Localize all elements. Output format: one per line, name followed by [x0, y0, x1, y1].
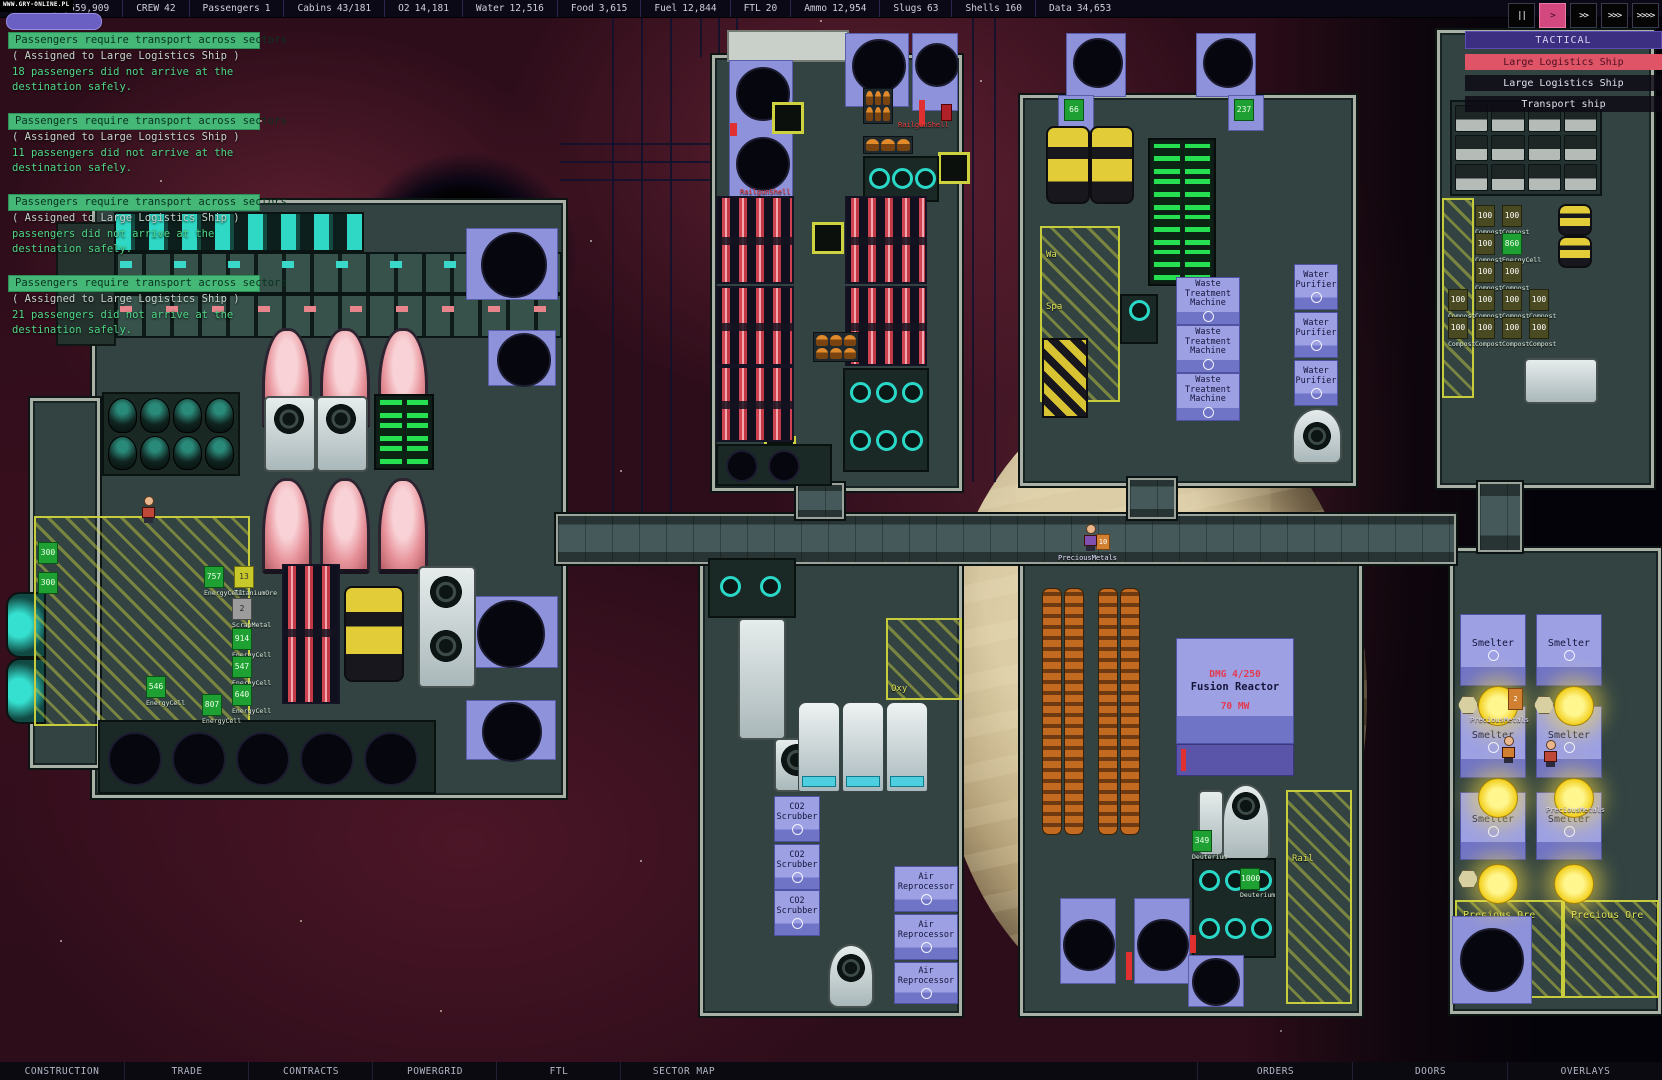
item-stack[interactable]: 300	[38, 572, 58, 594]
striped-machine[interactable]	[1042, 338, 1088, 418]
notification-body: destination safely.	[8, 323, 260, 339]
tactical-ship-row[interactable]: Transport ship	[1465, 96, 1662, 112]
railgun-shell-marker	[730, 123, 737, 136]
menu-overlays[interactable]: OVERLAYS	[1507, 1062, 1662, 1080]
notification-assigned: ( Assigned to Large Logistics Ship )	[8, 292, 260, 308]
storage-zone[interactable]: Oxy	[886, 618, 962, 700]
notification-title: Passengers require transport across sect…	[8, 275, 260, 292]
power-line	[560, 179, 712, 181]
notification-body: passengers did not arrive at the	[8, 227, 260, 243]
compost-stack[interactable]: 100Compost	[1529, 289, 1549, 320]
turret-pad[interactable]	[1196, 33, 1256, 97]
notification-body: 11 passengers did not arrive at the	[8, 146, 260, 162]
corridor[interactable]	[556, 514, 1456, 564]
menu-doors[interactable]: DOORS	[1352, 1062, 1508, 1080]
stat-food: Food3,615	[557, 0, 641, 17]
co2-scrubber[interactable]: CO2 Scrubber	[774, 844, 820, 890]
tactical-ship-row-selected[interactable]: Large Logistics Ship	[1465, 54, 1662, 70]
tactical-ship-row[interactable]: Large Logistics Ship	[1465, 75, 1662, 91]
menu-powergrid[interactable]: POWERGRID	[372, 1062, 497, 1080]
notification[interactable]: Passengers require transport across sect…	[8, 113, 260, 177]
white-machine[interactable]	[1524, 358, 1598, 404]
notification-body: destination safely.	[8, 80, 260, 96]
weapon-rack[interactable]	[282, 564, 340, 704]
stat-cabins: Cabins43/181	[283, 0, 384, 17]
red-indicator-bar	[1126, 952, 1132, 980]
menu-sector-map[interactable]: SECTOR MAP	[620, 1062, 747, 1080]
speed-controls: || > >> >>> >>>>	[1508, 3, 1659, 28]
engine-bank[interactable]	[98, 720, 436, 794]
yellow-machine[interactable]	[1046, 126, 1090, 204]
gas-tank[interactable]	[798, 702, 840, 792]
item-stack[interactable]: 547EnergyCell	[232, 656, 252, 687]
precious-ore-zone[interactable]: Precious Ore	[1563, 900, 1659, 998]
zone-label: Oxy	[891, 684, 907, 694]
turret-pad[interactable]	[1066, 33, 1126, 97]
ore-column[interactable]	[1042, 588, 1062, 835]
notification-body: destination safely.	[8, 242, 260, 258]
yellow-machine[interactable]	[1090, 126, 1134, 204]
notification-title: Passengers require transport across sect…	[8, 194, 260, 211]
storage-rack[interactable]	[1148, 138, 1216, 286]
power-line	[641, 17, 643, 517]
fast-forward-3-button[interactable]: >>>	[1601, 3, 1628, 28]
hazard-tile	[772, 102, 804, 134]
hazard-tile	[812, 222, 844, 254]
compost-stack[interactable]: 100Compost	[1502, 317, 1522, 348]
compost-stack[interactable]: 100Compost	[1502, 261, 1522, 292]
missile-rack[interactable]	[863, 88, 893, 124]
smelter[interactable]: Smelter	[1460, 614, 1526, 686]
stat-fuel: Fuel12,844	[640, 0, 729, 17]
railgun-shell-label: RailgunShell	[898, 121, 949, 129]
stat-o2: O214,181	[384, 0, 462, 17]
notification-body: destination safely.	[8, 161, 260, 177]
bottom-menu-bar: CONSTRUCTION TRADE CONTRACTS POWERGRID F…	[0, 1062, 1662, 1080]
zone-label: Precious Ore	[1571, 910, 1643, 921]
machine-grid[interactable]	[1450, 100, 1602, 196]
robot[interactable]	[1120, 294, 1158, 344]
weapon-rack[interactable]	[845, 196, 927, 284]
crew-member-corridor[interactable]	[1084, 524, 1097, 548]
storage-zone[interactable]: Rail	[1286, 790, 1352, 1004]
corridor-stub	[1478, 482, 1522, 552]
fast-forward-4-button[interactable]: >>>>	[1632, 3, 1659, 28]
air-reprocessor[interactable]: Air Reprocessor	[894, 962, 958, 1004]
stat-ammo: Ammo12,954	[790, 0, 879, 17]
menu-trade[interactable]: TRADE	[124, 1062, 249, 1080]
notification-assigned: ( Assigned to Large Logistics Ship )	[8, 211, 260, 227]
item-stack[interactable]: 1000Deuterium	[1240, 868, 1260, 899]
red-indicator-bar	[1190, 935, 1196, 953]
railgun-shell-label: RailgunShell	[740, 188, 791, 196]
power-line	[670, 17, 672, 517]
dial-machine[interactable]	[264, 396, 316, 472]
teal-machine-bank[interactable]	[843, 368, 929, 472]
water-purifier[interactable]: Water Purifier	[1294, 312, 1338, 358]
tactical-title: TACTICAL	[1465, 31, 1662, 49]
site-watermark: WWW.GRY-ONLINE.PL	[0, 0, 73, 12]
stat-slugs: Slugs63	[879, 0, 951, 17]
air-reprocessor[interactable]: Air Reprocessor	[894, 914, 958, 960]
smelter[interactable]: Smelter	[1536, 614, 1602, 686]
compost-stack[interactable]: 100Compost	[1475, 289, 1495, 320]
fan-machine[interactable]	[418, 566, 476, 688]
turret-pad[interactable]	[488, 330, 556, 386]
item-stack[interactable]: 640EnergyCell	[232, 684, 252, 715]
ore-column[interactable]	[1064, 588, 1084, 835]
toolbar-button[interactable]	[6, 13, 102, 30]
molten-metal	[1554, 864, 1594, 904]
power-line	[972, 17, 974, 482]
stat-passengers: Passengers1	[189, 0, 284, 17]
compost-stack[interactable]: 100Compost	[1475, 261, 1495, 292]
item-stack[interactable]: 237	[1234, 99, 1254, 121]
waste-treatment-machine[interactable]: Waste Treatment Machine	[1176, 277, 1240, 325]
power-line	[700, 17, 702, 57]
ore-column[interactable]	[1120, 588, 1140, 835]
menu-ftl[interactable]: FTL	[496, 1062, 621, 1080]
pod-machine[interactable]	[828, 944, 874, 1008]
menu-contracts[interactable]: CONTRACTS	[248, 1062, 373, 1080]
power-line	[994, 17, 996, 482]
menu-construction[interactable]: CONSTRUCTION	[0, 1062, 124, 1080]
teal-machine-row[interactable]	[708, 558, 796, 618]
cryo-pod[interactable]	[262, 478, 312, 574]
yellow-machine[interactable]	[1558, 204, 1592, 236]
turret-pad[interactable]	[1452, 916, 1532, 1004]
tall-machine[interactable]	[738, 618, 786, 740]
yellow-machine[interactable]	[344, 586, 404, 682]
zone-label: Rail	[1292, 854, 1314, 864]
air-reprocessor[interactable]: Air Reprocessor	[894, 866, 958, 912]
turret-pad[interactable]	[466, 700, 556, 760]
item-stack[interactable]: 807EnergyCell	[202, 694, 222, 725]
precious-metals-label: PreciousMetals	[1058, 554, 1117, 562]
game-screen: 757EnergyCell 13TitaniumOre 2ScrapMetal …	[0, 0, 1662, 1080]
crew-member[interactable]	[142, 496, 155, 520]
stat-shells: Shells160	[951, 0, 1035, 17]
crate[interactable]: 2	[1508, 688, 1523, 710]
missile-rack[interactable]	[813, 332, 859, 362]
water-purifier[interactable]: Water Purifier	[1294, 360, 1338, 406]
reactor-base	[1176, 744, 1294, 776]
co2-scrubber[interactable]: CO2 Scrubber	[774, 796, 820, 842]
gas-tank[interactable]	[886, 702, 928, 792]
cryo-pod[interactable]	[378, 478, 428, 574]
molten-metal	[1554, 686, 1594, 726]
item-stack[interactable]: 757EnergyCell	[204, 566, 224, 597]
co2-scrubber[interactable]: CO2 Scrubber	[774, 890, 820, 936]
item-stack[interactable]: 300	[38, 542, 58, 564]
crew-member[interactable]	[1502, 736, 1515, 760]
zone-label: Wa	[1046, 250, 1057, 260]
compost-stack[interactable]: 100Compost	[1448, 289, 1468, 320]
stat-data: Data34,653	[1035, 0, 1124, 17]
power-line	[612, 17, 614, 517]
stat-crew: CREW42	[122, 0, 188, 17]
notification[interactable]: Passengers require transport across sect…	[8, 194, 260, 258]
menu-orders[interactable]: ORDERS	[1197, 1062, 1353, 1080]
precious-metals-label: PreciousMetals	[1546, 806, 1605, 814]
tactical-panel: TACTICAL Large Logistics Ship Large Logi…	[1465, 31, 1662, 112]
precious-metals-label: PreciousMetals	[1470, 716, 1529, 724]
turret-pad[interactable]	[462, 596, 558, 668]
turret-pad[interactable]	[1060, 898, 1116, 984]
weapon-rack[interactable]	[716, 286, 794, 366]
storage-rack[interactable]	[374, 394, 434, 470]
cryo-pod[interactable]	[320, 478, 370, 574]
gas-tank[interactable]	[842, 702, 884, 792]
item-stack[interactable]: 13TitaniumOre	[234, 566, 254, 597]
crew-member[interactable]	[1544, 740, 1557, 764]
railgun-shell-item[interactable]	[941, 104, 952, 121]
notification-assigned: ( Assigned to Large Logistics Ship )	[8, 130, 260, 146]
notification-title: Passengers require transport across sect…	[8, 32, 260, 49]
notification-body: 21 passengers did not arrive at the	[8, 308, 260, 324]
notification[interactable]: Passengers require transport across sect…	[8, 32, 260, 96]
item-stack[interactable]: 349Deuterium	[1192, 830, 1212, 861]
notification[interactable]: Passengers require transport across sect…	[8, 275, 260, 339]
item-stack[interactable]: 546EnergyCell	[146, 676, 166, 707]
fermenter-bank[interactable]	[102, 392, 240, 476]
item-stack[interactable]: 2ScrapMetal	[232, 598, 252, 629]
item-stack[interactable]: 860EnergyCell	[1502, 233, 1522, 264]
engine-block	[716, 444, 832, 486]
corridor-stub	[1128, 478, 1176, 519]
item-stack[interactable]: 66	[1064, 99, 1084, 121]
dial-machine[interactable]	[316, 396, 368, 472]
molten-metal	[1478, 778, 1518, 818]
zone-label: Spa	[1046, 302, 1062, 312]
fast-forward-2-button[interactable]: >>	[1570, 3, 1597, 28]
teal-machine-bank[interactable]	[1192, 858, 1276, 958]
ore-column[interactable]	[1098, 588, 1118, 835]
play-button[interactable]: >	[1539, 3, 1566, 28]
turret-pad[interactable]	[466, 228, 558, 300]
compost-stack[interactable]: 100Compost	[1502, 289, 1522, 320]
round-machine[interactable]	[1292, 408, 1342, 464]
power-line	[560, 161, 712, 163]
molten-metal	[1478, 864, 1518, 904]
missile-rack[interactable]	[863, 136, 913, 154]
ship2-hull-cap	[727, 30, 849, 62]
cylinder-machine[interactable]	[1222, 784, 1270, 860]
hazard-tile	[938, 152, 970, 184]
pause-button[interactable]: ||	[1508, 3, 1535, 28]
notification-assigned: ( Assigned to Large Logistics Ship )	[8, 49, 260, 65]
compost-stack[interactable]: 100Compost	[1475, 317, 1495, 348]
weapon-rack[interactable]	[716, 196, 794, 284]
yellow-machine[interactable]	[1558, 236, 1592, 268]
corridor-stub	[796, 483, 844, 519]
notification-body: 18 passengers did not arrive at the	[8, 65, 260, 81]
stat-water: Water12,516	[462, 0, 557, 17]
item-stack[interactable]: 914EnergyCell	[232, 628, 252, 659]
compost-stack[interactable]: 100Compost	[1502, 205, 1522, 236]
power-line	[718, 17, 720, 57]
compost-stack[interactable]: 100Compost	[1529, 317, 1549, 348]
compost-stack[interactable]: 100Compost	[1475, 205, 1495, 236]
fusion-reactor[interactable]: DMG 4/250 Fusion Reactor 70 MW	[1176, 638, 1294, 744]
weapon-rack[interactable]	[716, 366, 794, 442]
resource-topbar: $8,559,909 CREW42 Passengers1 Cabins43/1…	[0, 0, 1662, 18]
water-purifier[interactable]: Water Purifier	[1294, 264, 1338, 310]
waste-treatment-machine[interactable]: Waste Treatment Machine	[1176, 325, 1240, 373]
turret-pad[interactable]	[1188, 955, 1244, 1007]
power-line	[560, 143, 712, 145]
carried-crate: 10	[1096, 534, 1110, 550]
compost-stack[interactable]: 100Compost	[1475, 233, 1495, 264]
turret-pad[interactable]	[1134, 898, 1190, 984]
waste-treatment-machine[interactable]: Waste Treatment Machine	[1176, 373, 1240, 421]
compost-stack[interactable]: 100Compost	[1448, 317, 1468, 348]
stat-ftl: FTL20	[730, 0, 791, 17]
notification-title: Passengers require transport across sect…	[8, 113, 260, 130]
